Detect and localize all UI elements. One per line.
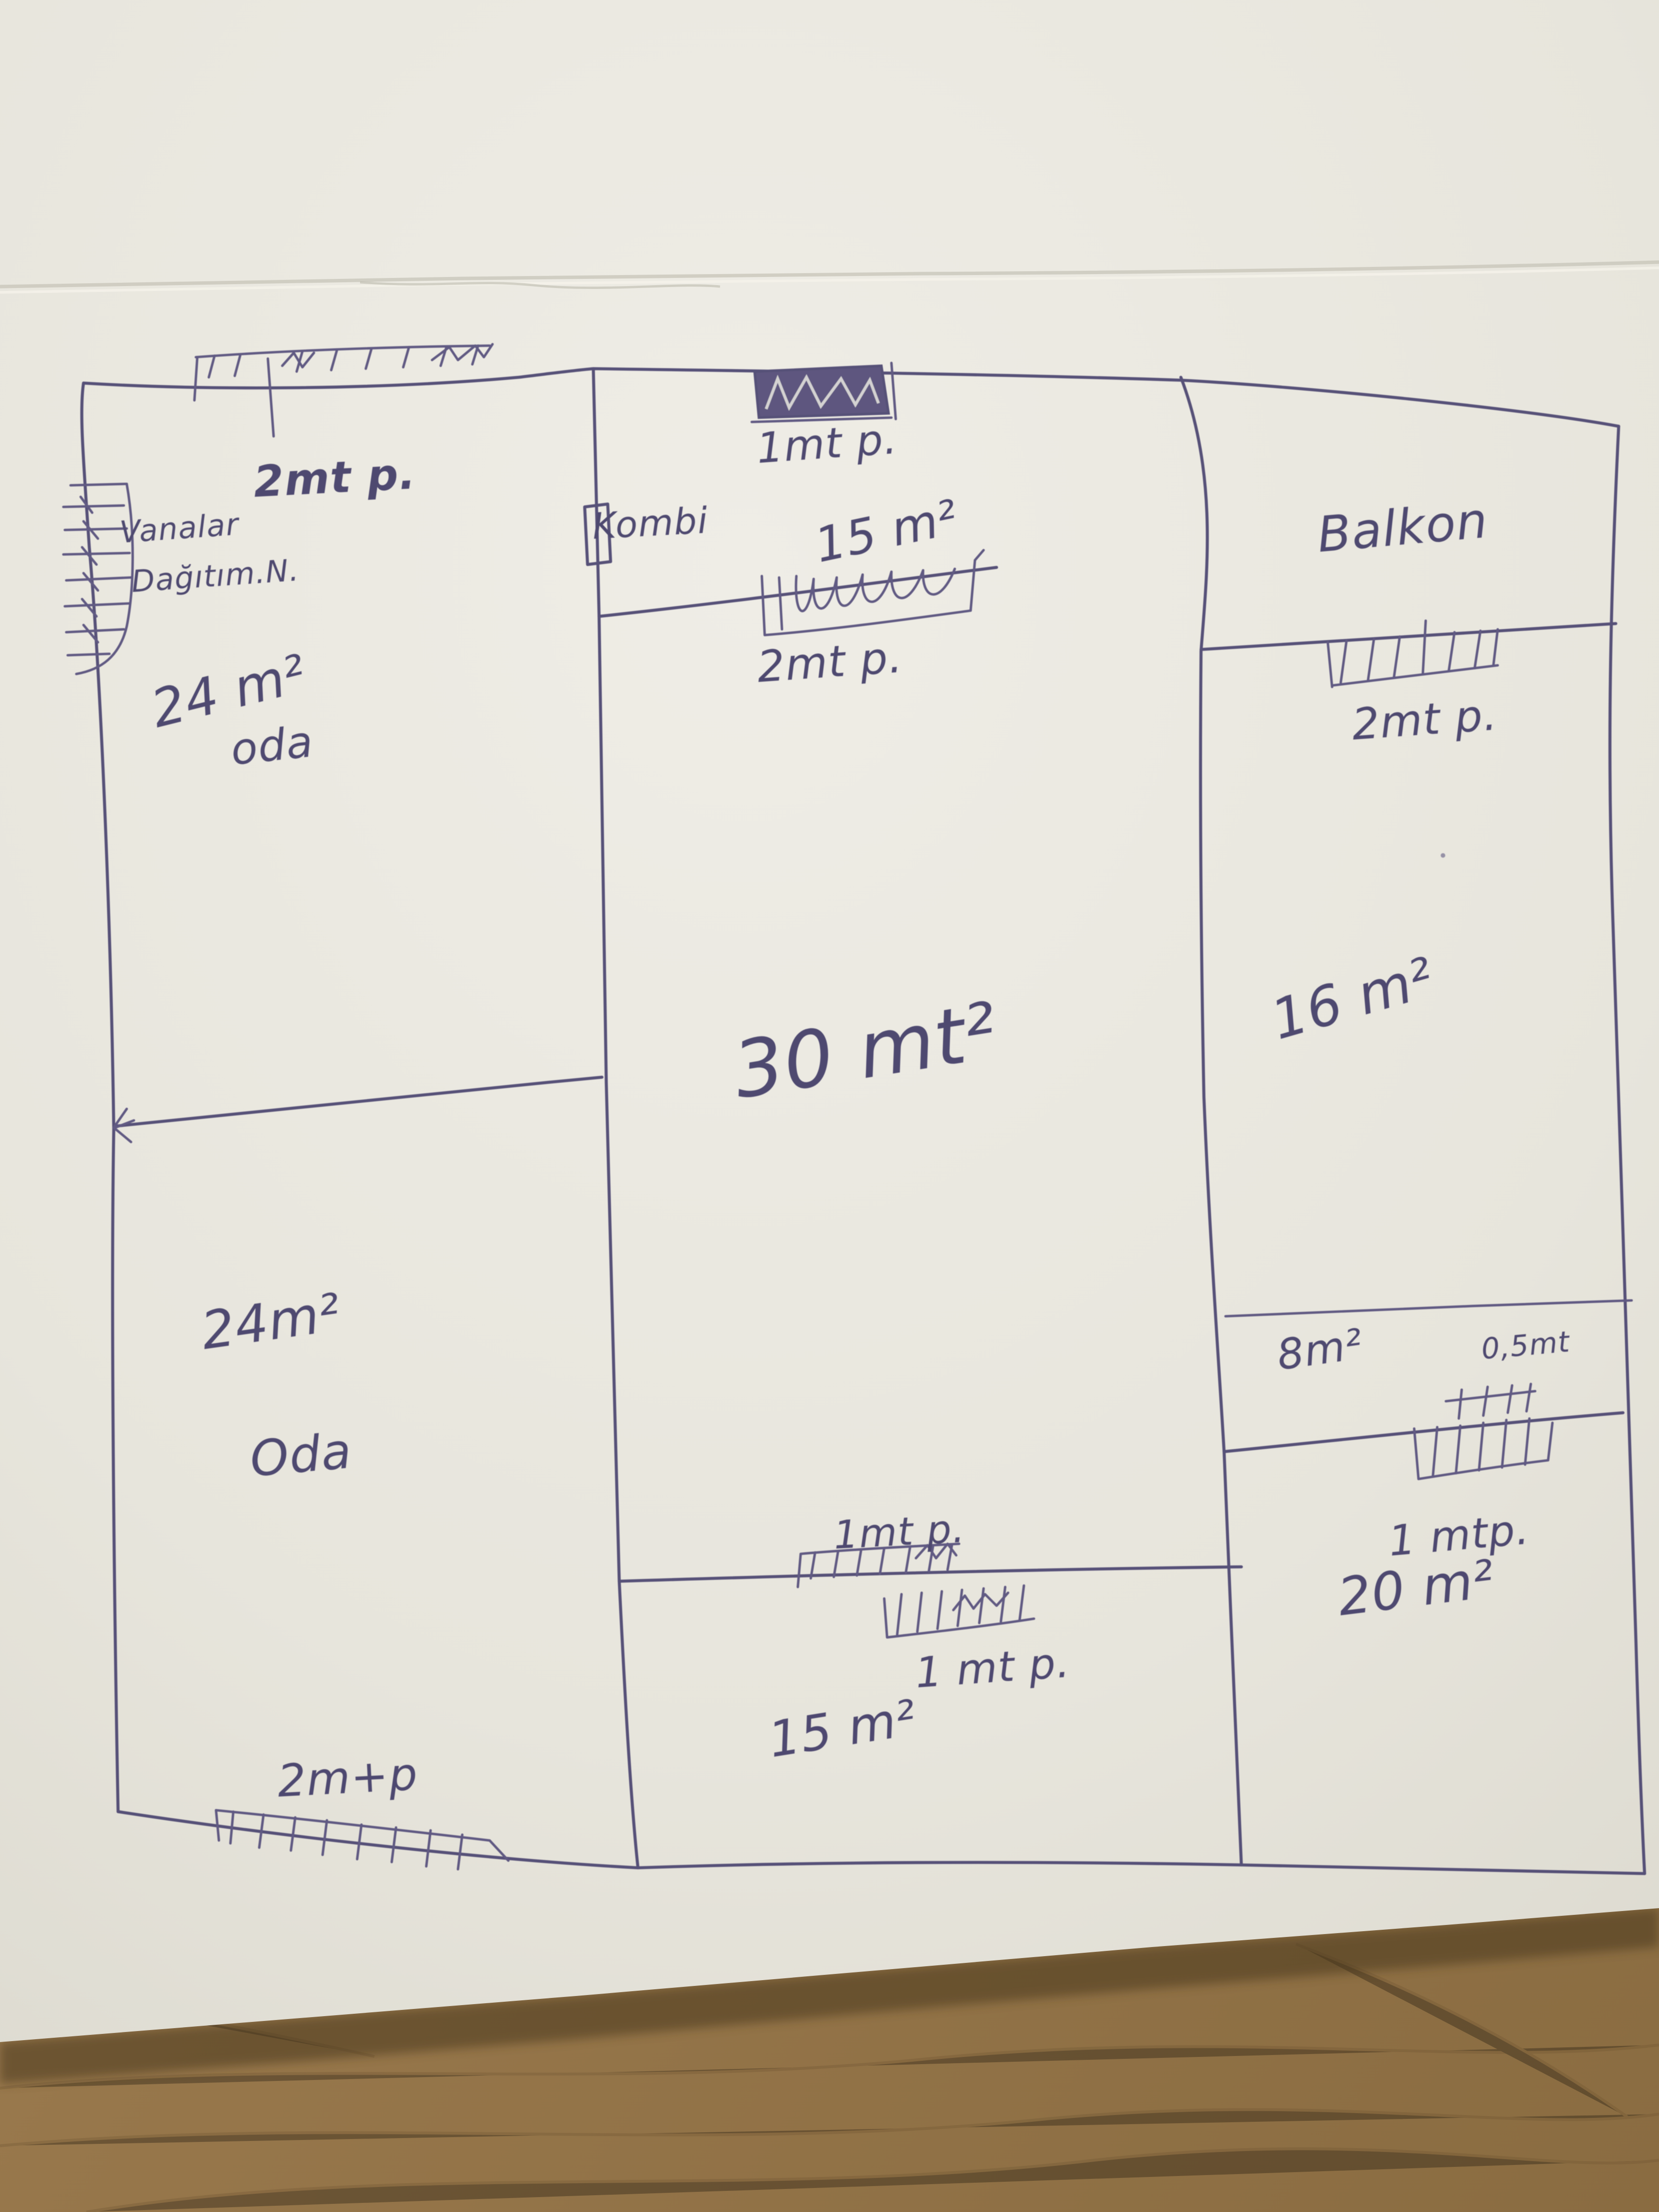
- label-window-top-left: 2mt p.: [252, 448, 417, 507]
- window-top-middle: [752, 363, 896, 422]
- label-kombi: Kombi: [591, 499, 709, 548]
- pen-dot: [1441, 853, 1445, 858]
- label-room-bottomleft-name: Oda: [248, 1422, 354, 1488]
- label-room-topleft-name: oda: [228, 716, 316, 775]
- label-window-top-middle: 1mt p.: [755, 414, 899, 473]
- label-window-right-top: 2mt p.: [1350, 690, 1499, 750]
- label-window-bottom: 2m+p: [276, 1748, 419, 1807]
- label-window-bc-upper: 1mt p.: [832, 1506, 966, 1558]
- sketch-canvas: 2mt p. Vanalar Dağıtım.N. 24 m² oda 1mt …: [0, 0, 1659, 2212]
- photo-of-floor-plan-sketch: 2mt p. Vanalar Dağıtım.N. 24 m² oda 1mt …: [0, 0, 1659, 2212]
- label-window-middle: 2mt p.: [756, 632, 904, 693]
